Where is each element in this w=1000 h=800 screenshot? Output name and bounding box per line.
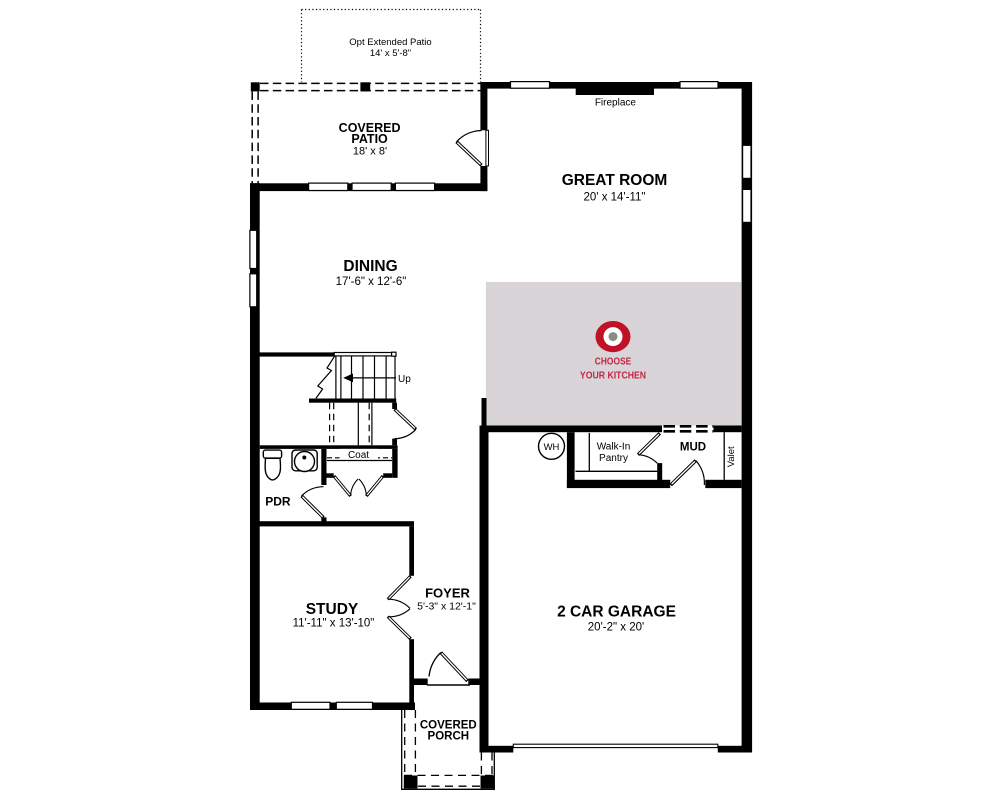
svg-text:MUD: MUD [680,442,706,454]
svg-text:YOUR KITCHEN: YOUR KITCHEN [580,370,646,382]
svg-text:Pantry: Pantry [599,453,628,464]
svg-text:WH: WH [544,442,560,453]
svg-text:18' x 8': 18' x 8' [353,146,387,158]
svg-text:20' x 14'-11": 20' x 14'-11" [584,191,646,203]
svg-text:COVERED: COVERED [420,720,477,732]
svg-text:GREAT ROOM: GREAT ROOM [562,172,668,189]
svg-text:FOYER: FOYER [425,585,470,600]
svg-text:Coat: Coat [348,450,369,461]
svg-text:20'-2" x 20': 20'-2" x 20' [588,621,644,633]
svg-text:2 CAR GARAGE: 2 CAR GARAGE [557,604,676,621]
svg-text:17'-6" x 12'-6": 17'-6" x 12'-6" [336,276,407,288]
svg-text:Walk-In: Walk-In [597,442,631,453]
svg-text:Up: Up [398,374,411,385]
svg-text:11'-11" x 13'-10": 11'-11" x 13'-10" [293,617,375,629]
svg-text:5'-3" x 12'-1": 5'-3" x 12'-1" [417,601,476,613]
svg-text:PORCH: PORCH [428,731,470,743]
svg-text:PATIO: PATIO [351,132,388,146]
svg-text:Valet: Valet [726,446,737,467]
svg-text:Fireplace: Fireplace [595,97,637,108]
svg-text:PDR: PDR [265,494,291,508]
svg-text:DINING: DINING [343,258,397,275]
svg-text:STUDY: STUDY [306,601,359,618]
svg-text:14' x 5'-8": 14' x 5'-8" [370,48,411,59]
svg-text:CHOOSE: CHOOSE [595,356,631,368]
svg-text:Opt Extended Patio: Opt Extended Patio [349,37,431,48]
